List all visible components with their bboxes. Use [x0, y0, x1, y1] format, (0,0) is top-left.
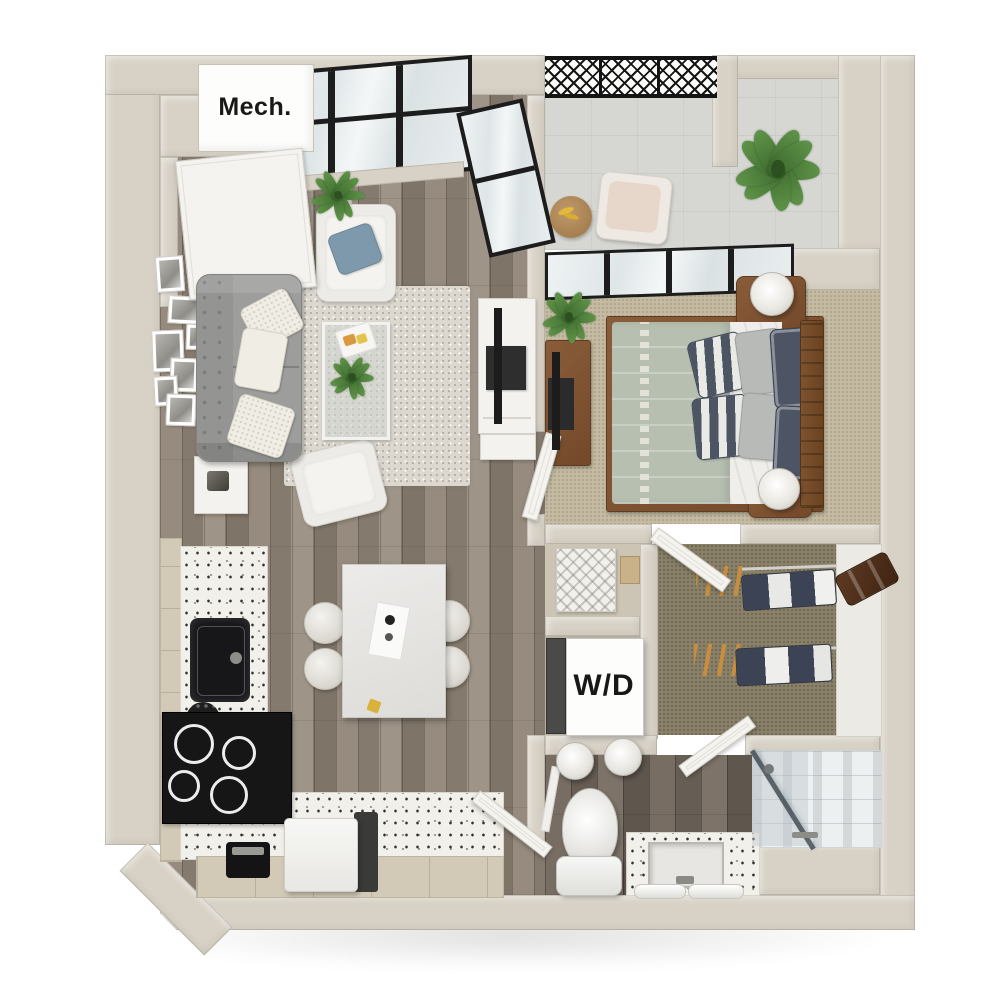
- wall-left: [105, 55, 160, 845]
- nightstand-lamp: [758, 468, 800, 510]
- gallery-frame: [165, 393, 196, 426]
- wall-bedroom-closet-a: [545, 524, 652, 544]
- wall-bottom: [160, 895, 915, 930]
- wall-right: [880, 55, 915, 930]
- pendant-light: [604, 738, 642, 776]
- tray-bottle: [384, 614, 396, 626]
- armchair-cushion: [300, 449, 377, 517]
- coffee-table-plant: [330, 352, 374, 402]
- wall-bedroom-closet-b: [740, 524, 880, 544]
- console-lower-shelf: [480, 434, 536, 460]
- sink-faucet: [230, 652, 242, 664]
- tv-living: [494, 308, 502, 424]
- toaster-top: [232, 847, 264, 855]
- railing-post: [657, 60, 660, 94]
- balcony-railing: [545, 56, 717, 98]
- wall-bath-corner-fill: [758, 844, 880, 895]
- wall-linen-laundry: [545, 616, 640, 636]
- console-shelf-line: [483, 417, 531, 419]
- window-mullion: [328, 71, 335, 180]
- rolled-towel: [634, 884, 686, 899]
- sink-faucet: [676, 876, 694, 884]
- stove-burner: [222, 736, 256, 770]
- magazine-art: [356, 333, 368, 345]
- pendant-light: [556, 742, 594, 780]
- apartment-floor-plan: Mech.: [0, 0, 1000, 1000]
- balcony-chair: [595, 170, 674, 245]
- railing-post: [599, 60, 602, 94]
- tv-living-panel: [486, 346, 526, 390]
- mech-closet-label: Mech.: [198, 64, 312, 150]
- nightstand-lamp: [750, 272, 794, 316]
- shower-head: [764, 764, 774, 774]
- suitcase-strap: [847, 570, 866, 600]
- gallery-frame: [155, 255, 185, 293]
- bed-headboard: [800, 320, 824, 508]
- window-mullion: [666, 251, 672, 293]
- window-mullion: [728, 249, 734, 291]
- window-mullion: [604, 253, 610, 295]
- island-stool: [304, 648, 346, 690]
- bananas: [564, 212, 580, 221]
- suitcase-strap: [867, 559, 886, 589]
- stove-burner: [210, 776, 248, 814]
- washer-dryer-side: [546, 638, 566, 734]
- hanging-clothes: [741, 569, 837, 611]
- washer-dryer-label: W/D: [566, 638, 642, 734]
- side-table: [194, 456, 248, 514]
- refrigerator: [284, 818, 358, 892]
- toilet-tank: [556, 856, 622, 896]
- bedroom-plant: [542, 286, 596, 348]
- magazine-art: [342, 333, 357, 346]
- stove-burner: [168, 770, 200, 802]
- island-stool: [304, 602, 346, 644]
- tub-faucet: [792, 832, 818, 838]
- living-plant: [312, 168, 364, 222]
- balcony-table: [550, 196, 592, 238]
- toaster: [226, 842, 270, 878]
- rolled-towel: [688, 884, 744, 899]
- patio-door-mullion: [475, 165, 535, 183]
- balcony-plant: [736, 110, 820, 228]
- linen-basket: [620, 556, 640, 584]
- side-table-decor: [207, 471, 229, 491]
- tv-bedroom: [552, 352, 560, 450]
- linen-dresser: [556, 548, 616, 612]
- tray-bottle: [384, 632, 393, 641]
- stove-burner: [174, 724, 214, 764]
- window-mullion: [396, 65, 403, 174]
- kitchen-sink: [190, 618, 250, 702]
- duvet-trim-band: [640, 322, 649, 504]
- hanging-clothes: [735, 644, 833, 687]
- balcony-chair-cushion: [605, 180, 662, 233]
